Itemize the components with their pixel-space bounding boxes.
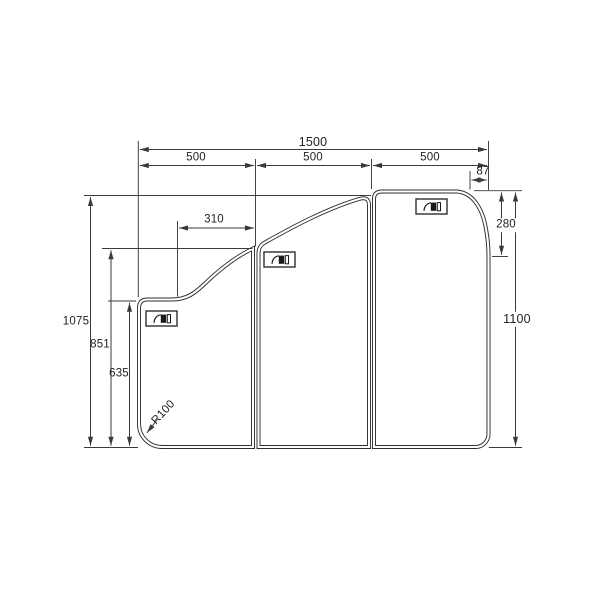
panel-middle-outline xyxy=(259,198,370,447)
handle-icon-right xyxy=(416,199,447,214)
handle-icon-left xyxy=(146,311,177,326)
bathtub-lid-drawing xyxy=(0,0,600,600)
dim-label-panel-width-left: 500 xyxy=(186,152,206,164)
dim-label-panel-width-middle: 500 xyxy=(303,152,323,164)
dim-label-right-height: 1100 xyxy=(501,312,533,327)
lid-panels xyxy=(139,192,489,448)
dim-label-junction-height: 851 xyxy=(90,339,110,351)
dim-label-left-total-height: 1075 xyxy=(63,316,89,328)
handle-icon-middle xyxy=(264,252,295,267)
dim-label-panel-width-right: 500 xyxy=(420,152,440,164)
dim-label-step-offset: 310 xyxy=(204,214,224,226)
dim-label-overall-width: 1500 xyxy=(299,136,328,149)
panel-right-outline xyxy=(374,192,489,448)
technical-drawing-canvas: 1500 500 500 500 87 310 1075 851 635 280… xyxy=(0,0,600,600)
dim-label-corner-width: 87 xyxy=(476,166,489,178)
dim-label-left-edge-height: 635 xyxy=(109,368,129,380)
dim-label-corner-height: 280 xyxy=(494,218,518,232)
